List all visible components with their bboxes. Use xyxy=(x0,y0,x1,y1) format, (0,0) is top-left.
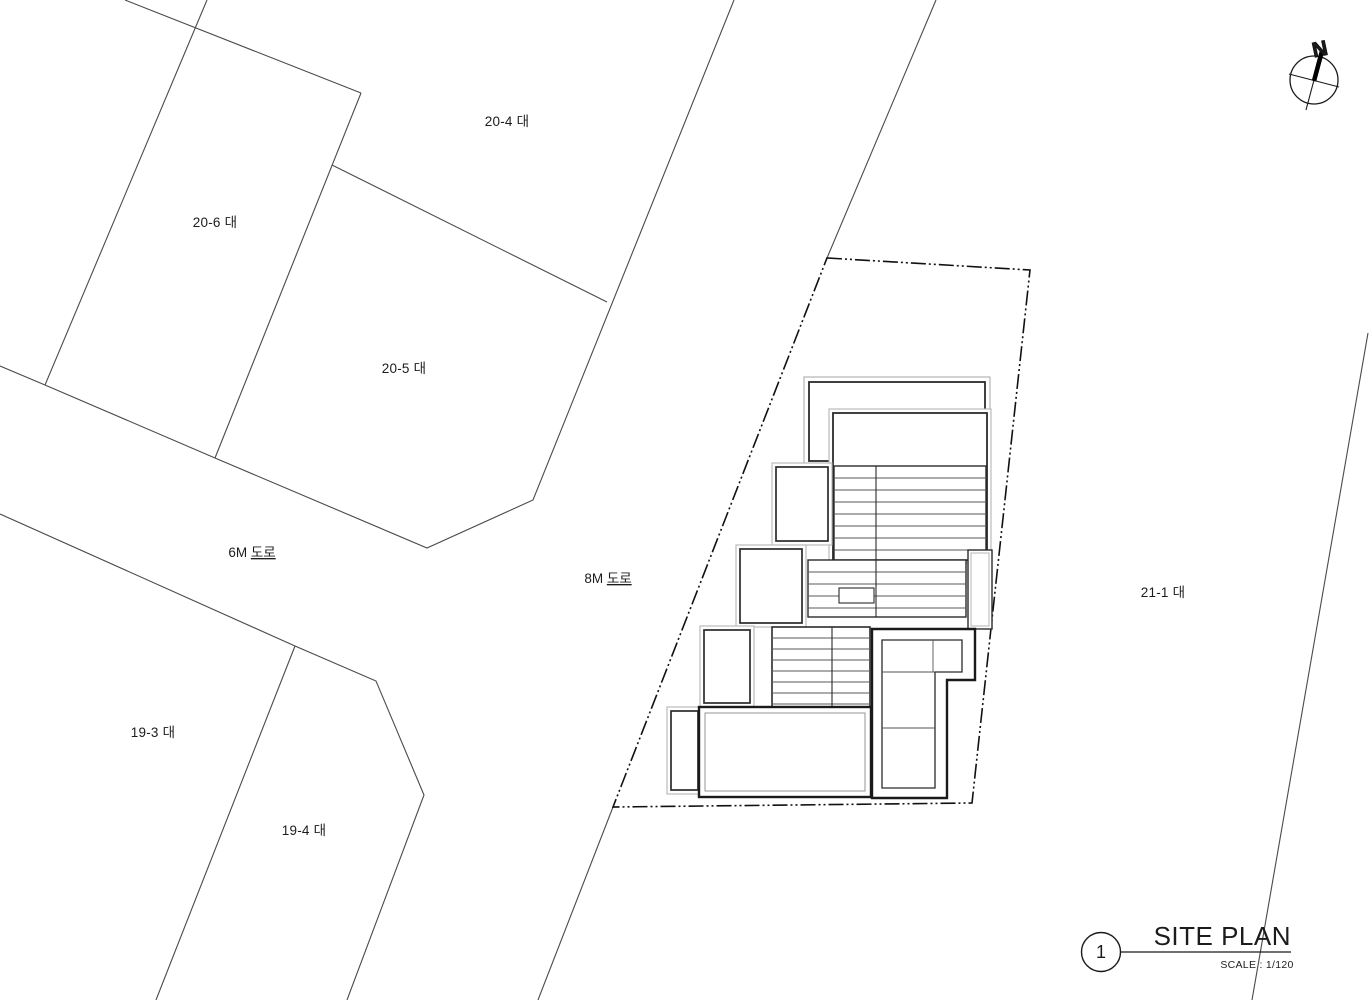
parcel-label-19-4: 19-4 대 xyxy=(282,823,326,838)
building-footprint xyxy=(667,377,992,798)
parcel-label-20-5: 20-5 대 xyxy=(382,361,426,376)
parcel-line xyxy=(1252,333,1368,1000)
road-edge-line xyxy=(0,514,424,1000)
parcel-label-20-6: 20-6 대 xyxy=(193,215,237,230)
road-label-6m: 6M 도로 xyxy=(228,545,275,560)
roof-access-rect xyxy=(839,588,874,603)
parcel-line xyxy=(215,93,361,458)
drawing-scale: SCALE : 1/120 xyxy=(1220,959,1293,971)
parcel-line xyxy=(156,646,295,1000)
road-edge-line xyxy=(0,0,734,548)
stair-hatch-middle xyxy=(808,560,966,617)
right-wing-inner-room xyxy=(882,640,962,788)
parcel-label-20-4: 20-4 대 xyxy=(485,114,529,129)
stair-hatch-upper xyxy=(834,466,986,560)
parcel-label-21-1: 21-1 대 xyxy=(1141,585,1185,600)
drawing-title: SITE PLAN xyxy=(1154,921,1291,951)
stair-hatch-lower xyxy=(772,627,870,707)
terrace-step-3 xyxy=(700,626,754,707)
road-edge-line xyxy=(827,0,936,258)
terrace-step-2 xyxy=(736,545,806,627)
road-label-8m: 8M 도로 xyxy=(584,571,631,586)
title-block: 1 SITE PLAN SCALE : 1/120 xyxy=(1082,921,1294,972)
north-label: N xyxy=(1310,37,1330,63)
terrace-step-1 xyxy=(772,463,832,545)
parcel-label-19-3: 19-3 대 xyxy=(131,725,175,740)
terrace-step-4 xyxy=(667,707,702,794)
detail-number: 1 xyxy=(1096,942,1106,962)
road-edge-line xyxy=(538,807,613,1000)
parcel-line xyxy=(332,165,607,302)
site-plan-sheet: 20-4 대 20-6 대 20-5 대 19-3 대 19-4 대 21-1 … xyxy=(0,0,1369,1000)
parcel-line xyxy=(125,0,361,93)
roof-strip-right xyxy=(968,550,992,629)
parcel-boundary-lines xyxy=(0,0,1368,1000)
parcel-line xyxy=(45,0,207,385)
north-arrow-compass: N xyxy=(1289,37,1339,110)
site-plan-drawing: 20-4 대 20-6 대 20-5 대 19-3 대 19-4 대 21-1 … xyxy=(0,0,1369,1000)
lower-room xyxy=(699,707,871,797)
labels: 20-4 대 20-6 대 20-5 대 19-3 대 19-4 대 21-1 … xyxy=(131,114,1185,838)
right-wing xyxy=(872,629,975,798)
